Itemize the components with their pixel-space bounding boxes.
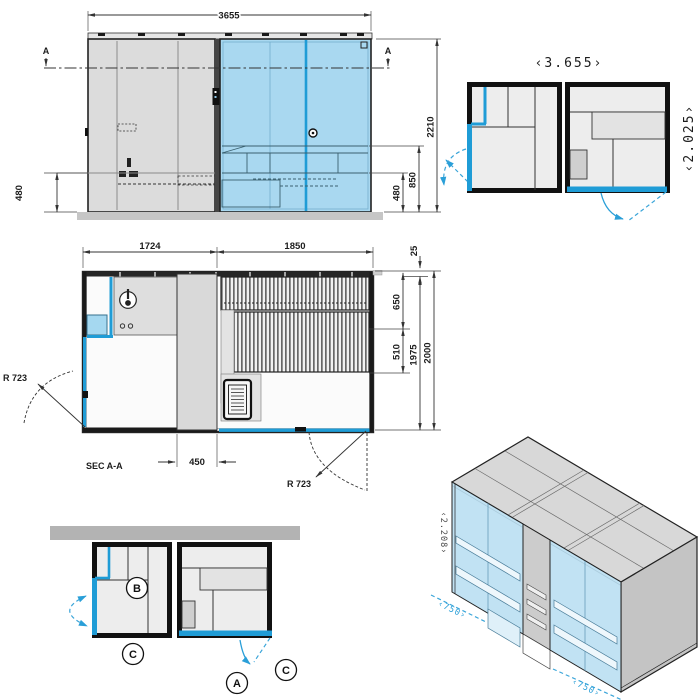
door-leaf-closed <box>295 427 306 432</box>
glass-wall-left <box>467 124 472 191</box>
section-marker-a-right: A <box>385 46 392 56</box>
control-panel-led <box>215 96 217 98</box>
plan-left-wall-glass <box>83 337 86 427</box>
drain <box>125 300 131 306</box>
door-swing-arc <box>309 432 365 490</box>
heater <box>182 601 195 628</box>
control-panel-led <box>215 91 217 93</box>
door-leaf-open <box>254 638 270 662</box>
heater-grate <box>231 389 244 410</box>
sauna-bench-upper <box>221 277 369 310</box>
layout-room-left <box>470 85 560 191</box>
site-plan-view: B C A C <box>50 526 300 694</box>
section-plan-view: R 723 R 723 1724 1850 25 650 510 1975 20… <box>3 241 441 492</box>
balloon-a-label: A <box>233 678 241 690</box>
iso-dim-module-right: ‹750› <box>570 677 602 699</box>
balloon-b-label: B <box>133 583 141 595</box>
plan-top-wall <box>84 272 372 277</box>
elevation-panel-wall <box>88 39 215 212</box>
door-handle-pin <box>312 132 315 135</box>
glass-wall-bottom <box>179 631 272 637</box>
dim-width: 3655 <box>218 11 240 22</box>
layout-dim-depth: ‹2.025› <box>682 104 697 173</box>
dim-base-left: 480 <box>14 185 25 201</box>
door-leaf-open <box>628 192 666 221</box>
dim-depth-outer: 2000 <box>423 342 434 363</box>
bench <box>200 568 267 590</box>
edge-handle <box>85 128 88 136</box>
radius-leader <box>316 431 366 477</box>
dim-bench-low: 480 <box>392 185 403 201</box>
technical-column <box>177 274 217 430</box>
door-swing-arc <box>601 193 623 219</box>
building-wall <box>50 526 300 540</box>
iso-dim-module-left: ‹750› <box>436 599 468 621</box>
door-swing-arc <box>24 371 73 423</box>
sauna-bench-lower <box>234 312 369 372</box>
base-plinth <box>77 212 383 220</box>
dim-wall-offset: 25 <box>409 245 420 256</box>
radius-leader <box>38 384 85 427</box>
dim-room-right: 1850 <box>284 241 305 252</box>
bench <box>592 112 665 139</box>
heater <box>570 150 587 179</box>
drawing-sheet: A A 3655 480 850 2210 480 <box>0 0 700 700</box>
dim-bench-depth-1: 650 <box>392 294 403 310</box>
layout-dim-width: ‹3.655› <box>535 56 604 71</box>
door-swing-arc <box>240 640 250 664</box>
shower-tray <box>87 315 107 335</box>
balloon-c1-label: C <box>129 649 137 661</box>
isometric-view: ‹2.208› ‹750› ‹750› <box>431 437 697 700</box>
door-swing-arrow-icon <box>446 160 468 182</box>
drawing-canvas: A A 3655 480 850 2210 480 <box>0 0 700 700</box>
iso-dim-height: ‹2.208› <box>438 512 448 555</box>
dim-room-left: 1724 <box>139 241 161 252</box>
radius-label-left: R 723 <box>3 373 27 383</box>
radius-label-right: R 723 <box>287 479 311 489</box>
dim-height: 2210 <box>426 116 437 137</box>
dim-bench-high: 850 <box>408 172 419 188</box>
dim-bench-depth-2: 510 <box>392 344 403 360</box>
layout-plan-view: ‹3.655› ‹2.025› <box>444 56 697 221</box>
hinge <box>83 391 88 398</box>
glass-wall-left <box>92 578 97 635</box>
glass-wall-bottom <box>567 187 667 193</box>
door-swing-arc <box>70 596 87 626</box>
front-elevation-view: A A 3655 480 850 2210 480 <box>14 11 468 221</box>
balloon-c2-label: C <box>282 665 290 677</box>
section-marker-a-left: A <box>43 46 50 56</box>
door-swing-arc <box>444 149 466 185</box>
dim-depth-inner: 1975 <box>409 344 420 366</box>
dim-column: 450 <box>189 457 205 468</box>
section-title: SEC A-A <box>86 461 123 471</box>
plan-left-wall-solid <box>83 272 87 337</box>
plan-right-wall <box>370 272 374 432</box>
